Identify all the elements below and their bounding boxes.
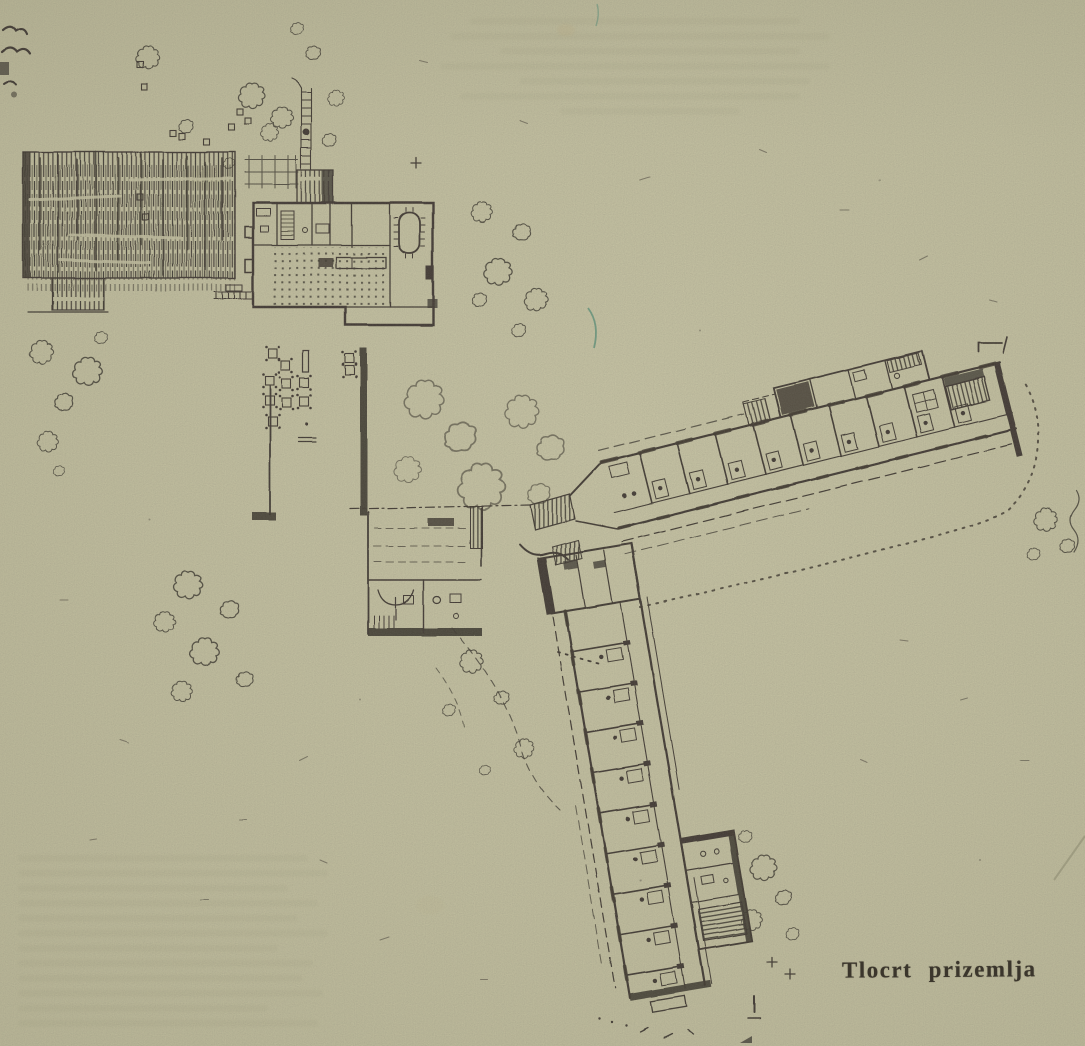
site-plan-drawing: #plan *{vector-effect:none} #plan{stroke… [0, 0, 1085, 1046]
scanned-plan-page: #plan *{vector-effect:none} #plan{stroke… [0, 0, 1085, 1046]
paper-grain [0, 0, 1085, 1046]
plan-caption: Tlocrt prizemlja [842, 956, 1037, 983]
